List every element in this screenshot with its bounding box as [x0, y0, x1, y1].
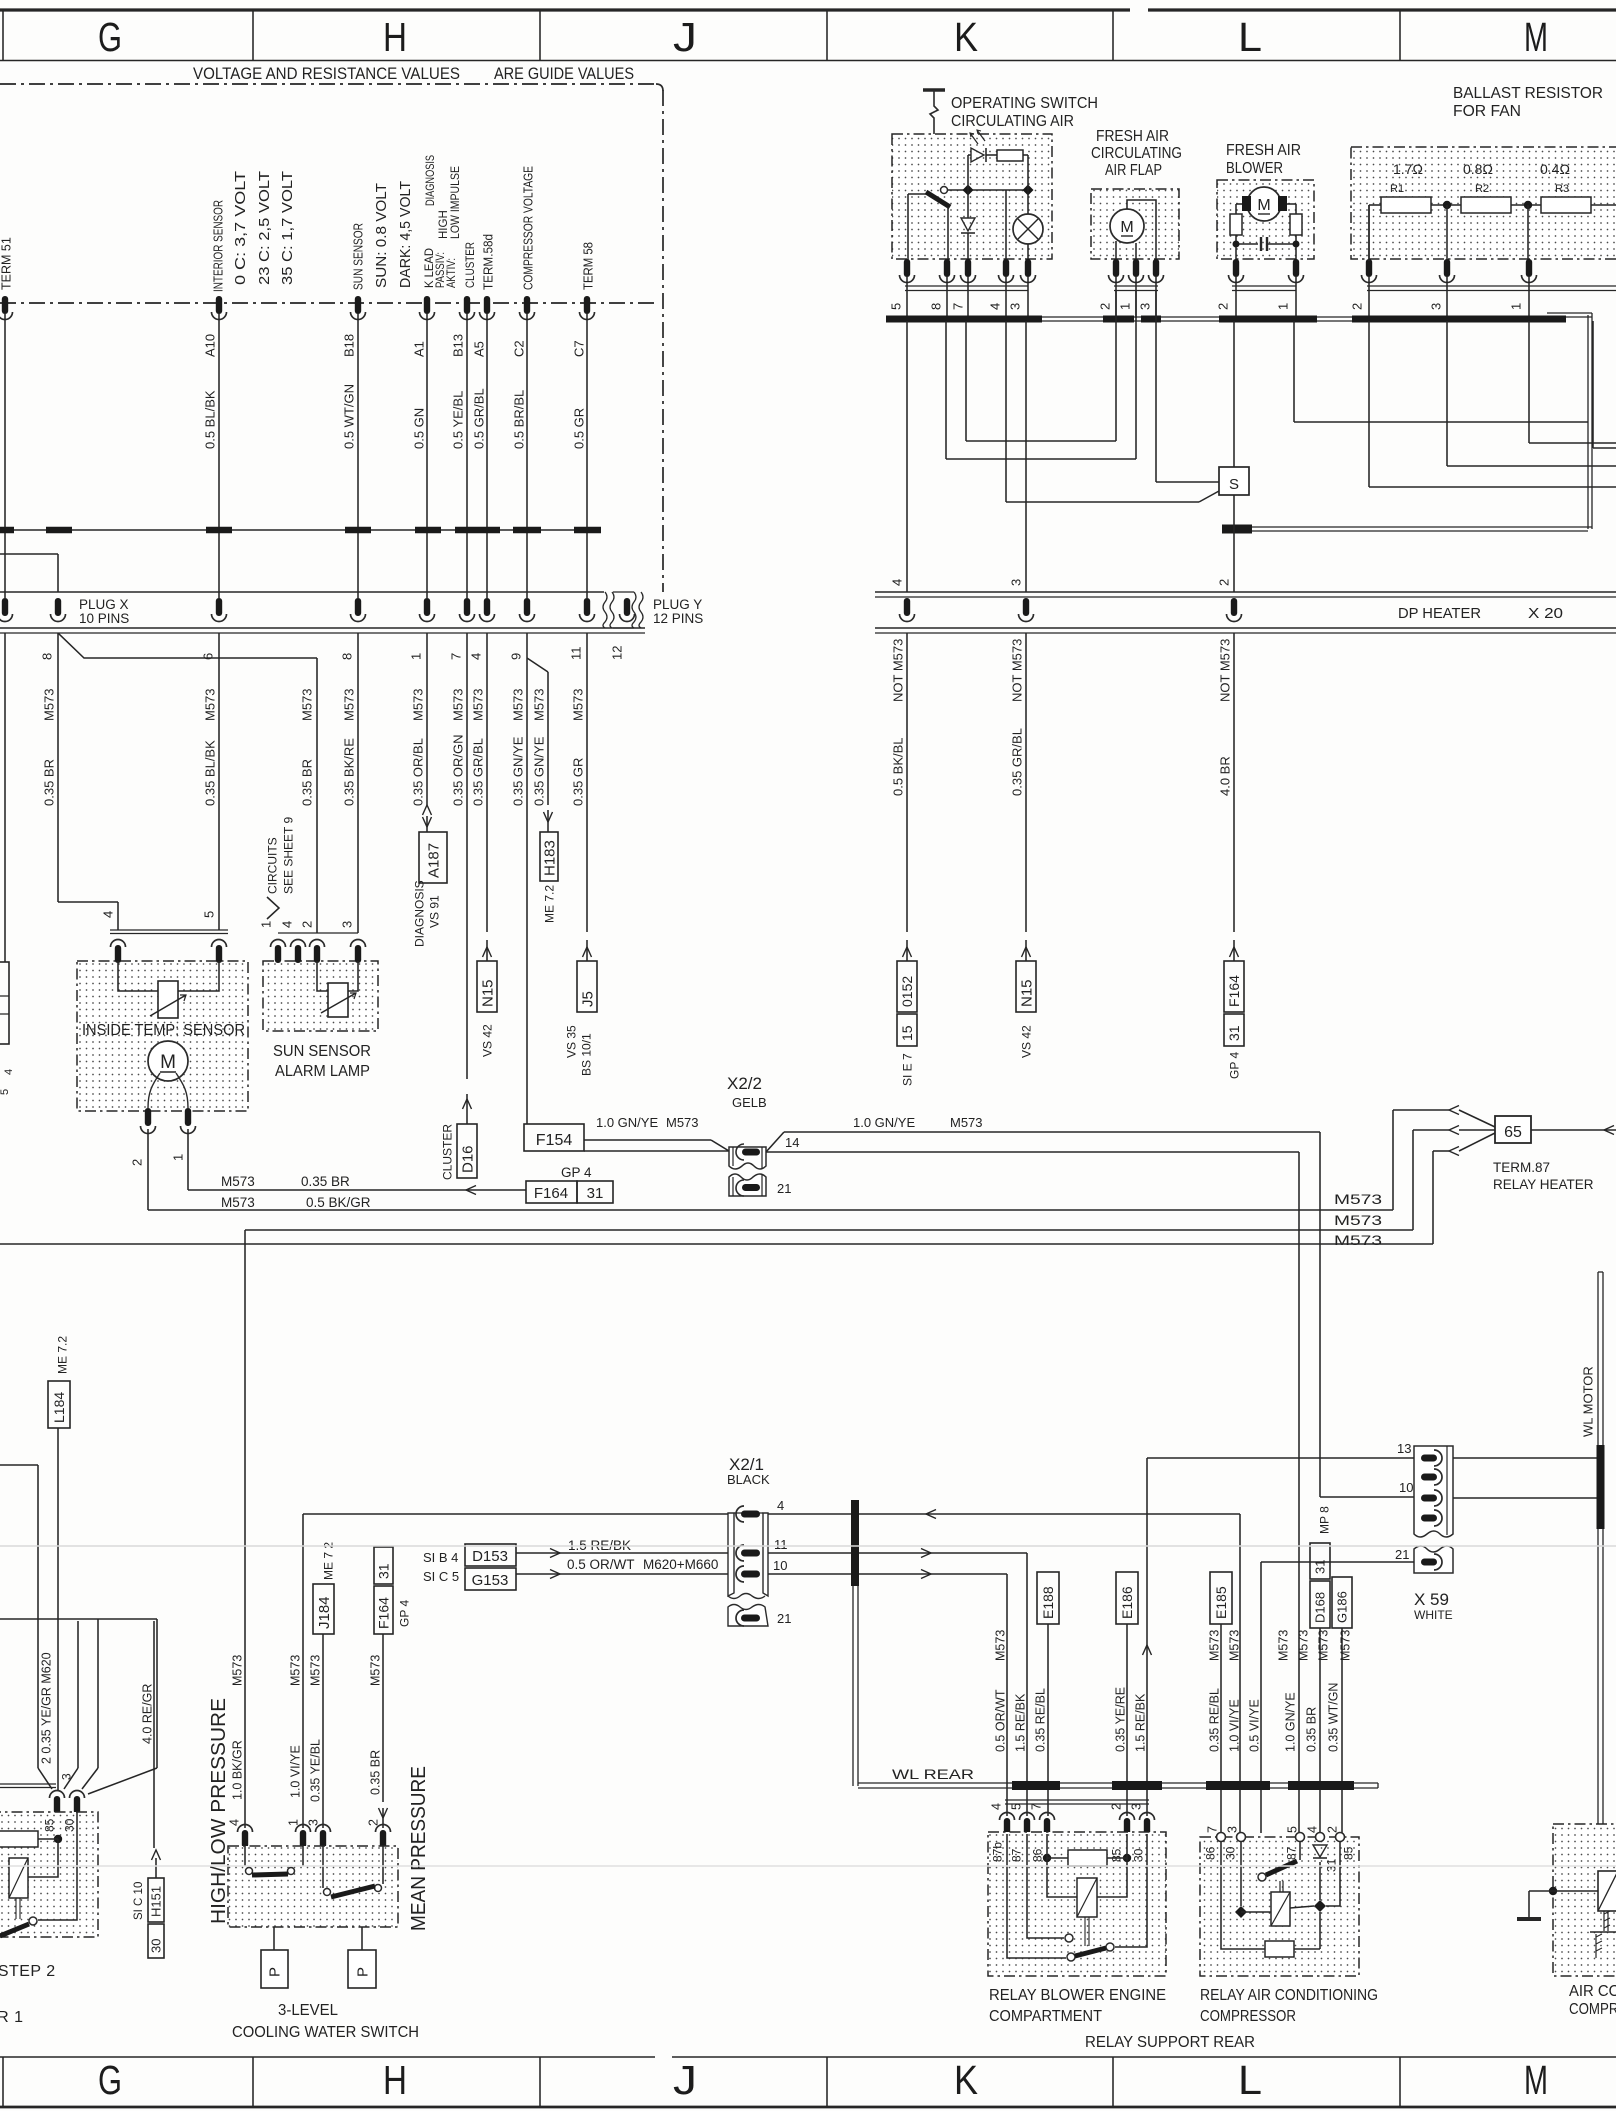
svg-text:M: M — [1524, 14, 1548, 60]
svg-text:0.35 BL/BK: 0.35 BL/BK — [203, 740, 218, 806]
svg-text:3: 3 — [1009, 579, 1024, 586]
svg-text:1: 1 — [1276, 303, 1291, 310]
svg-text:DIAGNOSIS: DIAGNOSIS — [412, 880, 426, 947]
svg-text:0.35 BK/RE: 0.35 BK/RE — [342, 738, 357, 806]
svg-text:CIRCULATING AIR: CIRCULATING AIR — [951, 113, 1074, 130]
svg-text:0.35 BR: 0.35 BR — [301, 1174, 350, 1189]
svg-text:0152: 0152 — [899, 976, 915, 1007]
svg-text:D153: D153 — [472, 1548, 508, 1565]
svg-text:M573: M573 — [1334, 1212, 1382, 1228]
svg-text:0.35 GN/YE: 0.35 GN/YE — [532, 736, 547, 806]
svg-text:GP 4: GP 4 — [561, 1165, 592, 1180]
svg-text:HIGH/LOW PRESSURE: HIGH/LOW PRESSURE — [208, 1698, 230, 1924]
svg-text:ME 7.2: ME 7.2 — [542, 885, 556, 923]
svg-text:HIGH: HIGH — [438, 210, 450, 239]
svg-text:4: 4 — [890, 579, 905, 586]
svg-text:12: 12 — [610, 646, 625, 660]
svg-text:H: H — [383, 14, 407, 60]
svg-text:0.35 OR/GN: 0.35 OR/GN — [451, 734, 466, 806]
svg-text:0.35 YE/BL: 0.35 YE/BL — [309, 1739, 323, 1802]
svg-text:4: 4 — [101, 911, 116, 918]
svg-text:BLOWER: BLOWER — [1226, 160, 1283, 177]
svg-text:A187: A187 — [425, 843, 442, 878]
svg-text:M573: M573 — [369, 1655, 383, 1686]
svg-text:1: 1 — [171, 1154, 186, 1161]
svg-text:MP 8: MP 8 — [1317, 1506, 1331, 1534]
svg-text:7: 7 — [951, 303, 966, 310]
svg-text:M: M — [1120, 219, 1133, 236]
svg-text:0.5 BL/BK: 0.5 BL/BK — [203, 390, 218, 449]
svg-text:21: 21 — [777, 1181, 791, 1196]
svg-text:PLUG X: PLUG X — [79, 597, 129, 612]
svg-text:J5: J5 — [579, 991, 596, 1007]
svg-text:INTERIOR SENSOR: INTERIOR SENSOR — [211, 200, 226, 292]
svg-text:M620+M660: M620+M660 — [643, 1557, 718, 1572]
svg-text:1.0 GN/YE: 1.0 GN/YE — [1284, 1692, 1298, 1752]
svg-text:L: L — [1238, 14, 1262, 60]
svg-text:31: 31 — [376, 1563, 392, 1579]
svg-text:8: 8 — [340, 653, 355, 660]
svg-text:A5: A5 — [472, 341, 487, 357]
svg-text:3: 3 — [59, 1773, 73, 1780]
svg-text:BLACK: BLACK — [727, 1472, 770, 1487]
svg-text:COMPRESS: COMPRESS — [1569, 2001, 1616, 2018]
svg-text:SI C 5: SI C 5 — [423, 1569, 459, 1584]
svg-text:WHITE: WHITE — [1414, 1608, 1453, 1622]
svg-text:CLUSTER: CLUSTER — [440, 1124, 454, 1180]
svg-text:1: 1 — [1118, 303, 1133, 310]
svg-text:TERM 51: TERM 51 — [0, 237, 14, 290]
svg-text:SI B 4: SI B 4 — [423, 1550, 458, 1565]
svg-text:87: 87 — [1009, 1848, 1023, 1862]
svg-text:14: 14 — [785, 1135, 799, 1150]
svg-text:M573: M573 — [666, 1115, 699, 1130]
svg-text:2: 2 — [367, 1819, 381, 1826]
svg-text:J: J — [673, 2057, 697, 2103]
svg-text:VOLTAGE AND RESISTANCE VALUES: VOLTAGE AND RESISTANCE VALUES — [193, 64, 460, 83]
svg-text:H: H — [383, 2057, 407, 2103]
svg-text:FRESH AIR: FRESH AIR — [1096, 128, 1169, 145]
svg-text:J: J — [673, 14, 697, 60]
svg-text:H183: H183 — [541, 840, 558, 876]
svg-text:RELAY AIR CONDITIONING: RELAY AIR CONDITIONING — [1200, 1987, 1378, 2004]
svg-text:D168: D168 — [1313, 1592, 1328, 1623]
svg-text:1.0 GN/YE: 1.0 GN/YE — [596, 1115, 658, 1130]
svg-text:M573: M573 — [1334, 1232, 1382, 1248]
svg-text:1.0 VI/YE: 1.0 VI/YE — [1228, 1699, 1242, 1752]
svg-text:VS 42: VS 42 — [1019, 1025, 1033, 1058]
svg-text:E188: E188 — [1040, 1586, 1056, 1619]
svg-text:C7: C7 — [572, 340, 587, 357]
svg-text:M573: M573 — [300, 688, 315, 721]
svg-text:3-LEVEL: 3-LEVEL — [278, 2002, 338, 2019]
svg-text:SEE SHEET 9: SEE SHEET 9 — [281, 817, 295, 894]
svg-text:8: 8 — [929, 303, 944, 310]
svg-text:0.35 WT/GN: 0.35 WT/GN — [1327, 1683, 1341, 1752]
svg-text:1.7Ω: 1.7Ω — [1393, 161, 1423, 177]
svg-text:0.35 GN/YE: 0.35 GN/YE — [511, 736, 526, 806]
svg-text:AY STEP 2: AY STEP 2 — [0, 1963, 56, 1980]
svg-text:GELB: GELB — [732, 1095, 767, 1110]
svg-text:7: 7 — [449, 653, 464, 660]
svg-text:GP 4: GP 4 — [397, 1600, 411, 1627]
svg-text:K: K — [954, 2057, 978, 2103]
svg-text:M573: M573 — [511, 688, 526, 721]
svg-text:6: 6 — [201, 653, 216, 660]
svg-text:4: 4 — [280, 921, 295, 928]
svg-text:87b: 87b — [990, 1842, 1004, 1862]
svg-text:D16: D16 — [459, 1145, 476, 1173]
svg-text:30: 30 — [1223, 1846, 1237, 1860]
svg-text:LOW IMPULSE: LOW IMPULSE — [450, 166, 462, 239]
svg-text:0.5 BR/BL: 0.5 BR/BL — [512, 390, 527, 449]
svg-text:M573: M573 — [411, 688, 426, 721]
svg-text:F164: F164 — [534, 1185, 568, 1202]
svg-text:0.35 BR: 0.35 BR — [300, 759, 315, 806]
svg-text:3: 3 — [1429, 303, 1444, 310]
svg-text:2: 2 — [1350, 303, 1365, 310]
svg-text:M573: M573 — [203, 688, 218, 721]
svg-text:5: 5 — [889, 303, 904, 310]
svg-text:86: 86 — [1030, 1848, 1044, 1862]
svg-text:1: 1 — [1509, 303, 1524, 310]
svg-text:5: 5 — [1286, 1826, 1300, 1833]
svg-text:0.5 BK/GR: 0.5 BK/GR — [306, 1195, 371, 1210]
svg-text:ME 7.2: ME 7.2 — [55, 1336, 69, 1374]
svg-text:AIR FLAP: AIR FLAP — [1105, 162, 1162, 179]
svg-text:DP HEATER: DP HEATER — [1398, 605, 1481, 622]
svg-text:SUN SENSOR: SUN SENSOR — [273, 1043, 371, 1060]
svg-text:2: 2 — [1326, 1826, 1340, 1833]
svg-text:G: G — [98, 2057, 122, 2103]
svg-text:7: 7 — [1206, 1826, 1220, 1833]
svg-text:NOT M573: NOT M573 — [1010, 639, 1025, 702]
svg-text:13: 13 — [1397, 1441, 1411, 1456]
svg-text:1: 1 — [409, 653, 424, 660]
svg-text:M573: M573 — [571, 688, 586, 721]
svg-text:R1: R1 — [1390, 183, 1404, 195]
svg-text:B13: B13 — [451, 334, 466, 357]
svg-text:P: P — [266, 1967, 283, 1977]
svg-text:10: 10 — [1399, 1480, 1413, 1495]
svg-text:M573: M573 — [342, 688, 357, 721]
svg-text:M573: M573 — [309, 1655, 323, 1686]
svg-text:K: K — [954, 14, 978, 60]
svg-text:87: 87 — [1284, 1846, 1298, 1860]
svg-text:RELAY HEATER: RELAY HEATER — [1493, 1177, 1594, 1192]
svg-text:L: L — [1238, 2057, 1262, 2103]
svg-text:2 0.35 YE/GR M620: 2 0.35 YE/GR M620 — [40, 1652, 54, 1764]
svg-text:5: 5 — [0, 1089, 11, 1095]
svg-text:G186: G186 — [1335, 1591, 1350, 1623]
svg-text:OPERATING SWITCH: OPERATING SWITCH — [951, 95, 1098, 112]
svg-text:COMPRESSOR: COMPRESSOR — [1200, 2008, 1296, 2025]
svg-text:0.5 GR/BL: 0.5 GR/BL — [472, 388, 487, 449]
svg-text:F154: F154 — [536, 1132, 573, 1149]
svg-text:CIRCULATING: CIRCULATING — [1091, 145, 1182, 162]
svg-text:PLUG Y: PLUG Y — [653, 597, 702, 612]
svg-text:4.0 RE/GR: 4.0 RE/GR — [141, 1684, 155, 1744]
svg-text:MEAN PRESSURE: MEAN PRESSURE — [408, 1766, 430, 1931]
svg-text:GP 4: GP 4 — [1227, 1052, 1241, 1079]
svg-text:0.5 YE/BL: 0.5 YE/BL — [451, 391, 466, 449]
svg-text:AKTIV:: AKTIV: — [446, 258, 458, 288]
svg-text:0.35 YE/RE: 0.35 YE/RE — [1114, 1687, 1128, 1752]
svg-text:3: 3 — [307, 1819, 321, 1826]
svg-text:4: 4 — [990, 1803, 1004, 1810]
svg-text:4: 4 — [988, 303, 1003, 310]
svg-text:3: 3 — [1008, 303, 1023, 310]
svg-text:COMPARTMENT: COMPARTMENT — [989, 2008, 1102, 2025]
svg-text:2: 2 — [300, 921, 315, 928]
svg-text:1.5 RE/BK: 1.5 RE/BK — [1134, 1693, 1148, 1752]
svg-text:3: 3 — [1138, 303, 1153, 310]
svg-text:WL REAR: WL REAR — [892, 1766, 974, 1782]
svg-text:8: 8 — [40, 653, 55, 660]
svg-text:TERM.58d: TERM.58d — [482, 234, 496, 290]
svg-text:F164: F164 — [1226, 975, 1242, 1007]
svg-text:AIR CON: AIR CON — [1569, 1983, 1616, 2000]
svg-text:M573: M573 — [1208, 1630, 1222, 1661]
svg-text:BS 10/1: BS 10/1 — [579, 1033, 593, 1076]
svg-text:VS 91: VS 91 — [427, 895, 441, 928]
svg-text:4: 4 — [3, 1069, 15, 1075]
svg-text:A1: A1 — [412, 341, 427, 357]
svg-text:B18: B18 — [342, 334, 357, 357]
svg-text:M573: M573 — [1339, 1630, 1353, 1661]
svg-text:0.5 WT/GN: 0.5 WT/GN — [342, 384, 357, 449]
svg-text:85: 85 — [1109, 1848, 1123, 1862]
svg-text:15: 15 — [899, 1025, 915, 1041]
svg-text:G153: G153 — [472, 1572, 509, 1589]
svg-text:L184: L184 — [51, 1392, 67, 1423]
svg-text:1.0 BK/GR: 1.0 BK/GR — [231, 1740, 245, 1800]
svg-text:4: 4 — [469, 653, 484, 660]
svg-text:M573: M573 — [1334, 1191, 1382, 1207]
svg-text:RELAY BLOWER ENGINE: RELAY BLOWER ENGINE — [989, 1987, 1166, 2004]
svg-text:1: 1 — [287, 1819, 301, 1826]
svg-text:21: 21 — [777, 1611, 791, 1626]
svg-text:NOT M573: NOT M573 — [891, 639, 906, 702]
svg-text:2: 2 — [1217, 579, 1232, 586]
svg-text:P: P — [354, 1967, 371, 1977]
svg-text:ALARM LAMP: ALARM LAMP — [275, 1063, 370, 1080]
svg-text:VS 42: VS 42 — [480, 1024, 494, 1057]
svg-text:85: 85 — [42, 1818, 56, 1832]
svg-text:0.4Ω: 0.4Ω — [1540, 161, 1570, 177]
svg-text:CLUSTER: CLUSTER — [465, 242, 477, 288]
svg-text:M573: M573 — [994, 1630, 1008, 1661]
svg-text:E186: E186 — [1119, 1586, 1135, 1619]
svg-text:RELAY SUPPORT REAR: RELAY SUPPORT REAR — [1085, 2034, 1255, 2051]
svg-text:31: 31 — [1313, 1560, 1328, 1574]
svg-text:0.35 BR: 0.35 BR — [42, 759, 57, 806]
svg-text:VS 35: VS 35 — [564, 1025, 578, 1058]
svg-text:H151: H151 — [149, 1886, 164, 1917]
svg-text:9: 9 — [509, 653, 524, 660]
svg-text:M573: M573 — [1228, 1630, 1242, 1661]
svg-text:CIRCUITS: CIRCUITS — [265, 837, 279, 894]
svg-text:INSIDE TEMP: SENSOR: INSIDE TEMP: SENSOR — [82, 1022, 245, 1039]
svg-text:M573: M573 — [471, 688, 486, 721]
svg-text:0.5 VI/YE: 0.5 VI/YE — [1248, 1699, 1262, 1752]
svg-text:86: 86 — [1203, 1846, 1217, 1860]
svg-text:1.0 VI/YE: 1.0 VI/YE — [289, 1745, 303, 1798]
svg-text:0.35 GR/BL: 0.35 GR/BL — [471, 738, 486, 806]
svg-text:TERM 58: TERM 58 — [582, 242, 596, 290]
svg-text:M573: M573 — [1297, 1630, 1311, 1661]
svg-text:11: 11 — [569, 647, 584, 661]
svg-text:J184: J184 — [316, 1596, 333, 1629]
svg-text:1: 1 — [259, 921, 274, 928]
svg-text:N15: N15 — [1018, 979, 1035, 1007]
svg-text:11: 11 — [774, 1537, 788, 1552]
svg-text:0.35 RE/BL: 0.35 RE/BL — [1208, 1688, 1222, 1752]
svg-text:SI E 7: SI E 7 — [900, 1053, 914, 1086]
svg-text:M573: M573 — [42, 688, 57, 721]
svg-text:0.35 GR: 0.35 GR — [571, 758, 586, 806]
svg-text:0.8Ω: 0.8Ω — [1463, 161, 1493, 177]
svg-text:SUN: 0.8 VOLT: SUN: 0.8 VOLT — [374, 183, 390, 288]
svg-text:X2/2: X2/2 — [727, 1074, 762, 1093]
svg-text:0.35 RE/BL: 0.35 RE/BL — [1034, 1688, 1048, 1752]
svg-text:0.35 BR: 0.35 BR — [1305, 1707, 1319, 1752]
svg-text:M: M — [1257, 197, 1270, 214]
svg-text:X 20: X 20 — [1528, 605, 1563, 622]
svg-text:M573: M573 — [1317, 1630, 1331, 1661]
svg-text:0.5 BK/BL: 0.5 BK/BL — [891, 737, 906, 796]
svg-text:30: 30 — [149, 1939, 164, 1953]
svg-text:R3: R3 — [1555, 183, 1569, 195]
svg-text:F164: F164 — [376, 1597, 392, 1629]
svg-text:M573: M573 — [950, 1115, 983, 1130]
svg-text:SUN SENSOR: SUN SENSOR — [351, 223, 366, 290]
svg-text:30: 30 — [62, 1818, 76, 1832]
svg-text:G: G — [98, 14, 122, 60]
svg-text:1.0 GN/YE: 1.0 GN/YE — [853, 1115, 915, 1130]
svg-text:0.35 GR/BL: 0.35 GR/BL — [1010, 728, 1025, 796]
svg-text:M573: M573 — [289, 1655, 303, 1686]
svg-text:M573: M573 — [451, 688, 466, 721]
svg-text:A10: A10 — [203, 334, 218, 357]
svg-text:0 C: 3,7 VOLT: 0 C: 3,7 VOLT — [233, 171, 249, 285]
svg-text:ME 7 2: ME 7 2 — [321, 1542, 335, 1580]
svg-text:N15: N15 — [479, 979, 496, 1007]
svg-text:0.5 GN: 0.5 GN — [412, 408, 427, 449]
svg-text:M573: M573 — [221, 1174, 255, 1189]
svg-text:2: 2 — [1216, 303, 1231, 310]
svg-text:WL MOTOR: WL MOTOR — [1581, 1366, 1596, 1437]
svg-text:21: 21 — [1395, 1547, 1409, 1562]
svg-text:E185: E185 — [1213, 1586, 1229, 1619]
svg-text:3: 3 — [340, 921, 355, 928]
svg-text:0.5 GR: 0.5 GR — [572, 408, 587, 449]
svg-text:ARE GUIDE VALUES: ARE GUIDE VALUES — [494, 64, 634, 83]
svg-text:65: 65 — [1504, 1124, 1522, 1141]
svg-text:DARK: 4,5 VOLT: DARK: 4,5 VOLT — [398, 181, 414, 288]
svg-text:0.35 BR: 0.35 BR — [369, 1750, 383, 1795]
svg-text:DIAGNOSIS: DIAGNOSIS — [425, 155, 437, 206]
svg-text:12 PINS: 12 PINS — [653, 611, 703, 626]
svg-text:10: 10 — [773, 1558, 787, 1573]
svg-text:FRESH AIR: FRESH AIR — [1226, 142, 1301, 159]
svg-text:31: 31 — [1324, 1858, 1338, 1872]
svg-text:FOR FAN: FOR FAN — [1453, 103, 1521, 120]
svg-text:5: 5 — [202, 911, 217, 918]
svg-text:C2: C2 — [512, 340, 527, 357]
svg-text:NOT M573: NOT M573 — [1218, 639, 1233, 702]
svg-text:2: 2 — [1098, 303, 1113, 310]
svg-text:M: M — [160, 1052, 176, 1073]
svg-text:31: 31 — [587, 1185, 604, 1202]
svg-text:ER 1: ER 1 — [0, 2009, 24, 2026]
svg-text:4: 4 — [1306, 1826, 1320, 1833]
svg-text:30: 30 — [1131, 1848, 1145, 1862]
svg-text:0.5 OR/WT: 0.5 OR/WT — [567, 1557, 635, 1572]
svg-text:M573: M573 — [1277, 1630, 1291, 1661]
svg-text:23 C: 2,5 VOLT: 23 C: 2,5 VOLT — [257, 171, 273, 285]
svg-text:R2: R2 — [1475, 183, 1489, 195]
svg-text:COOLING WATER SWITCH: COOLING WATER SWITCH — [232, 2024, 419, 2041]
svg-text:BALLAST RESISTOR: BALLAST RESISTOR — [1453, 85, 1603, 102]
svg-text:4: 4 — [777, 1498, 784, 1513]
svg-text:0.5 OR/WT: 0.5 OR/WT — [994, 1689, 1008, 1752]
svg-text:M: M — [1524, 2057, 1548, 2103]
svg-text:31: 31 — [1226, 1025, 1242, 1041]
svg-text:COMPRESSOR VOLTAGE: COMPRESSOR VOLTAGE — [522, 166, 536, 290]
svg-text:M573: M573 — [532, 688, 547, 721]
svg-text:2: 2 — [130, 1159, 145, 1166]
svg-text:85: 85 — [1341, 1846, 1355, 1860]
svg-text:M573: M573 — [221, 1195, 255, 1210]
svg-text:SI C 10: SI C 10 — [133, 1882, 145, 1920]
svg-text:M573: M573 — [231, 1655, 245, 1686]
svg-text:3: 3 — [1226, 1826, 1240, 1833]
svg-text:4.0 BR: 4.0 BR — [1218, 756, 1233, 796]
svg-text:S: S — [1229, 476, 1239, 493]
svg-text:1.5 RE/BK: 1.5 RE/BK — [1014, 1693, 1028, 1752]
svg-text:TERM.87: TERM.87 — [1493, 1160, 1550, 1175]
svg-text:35 C: 1,7 VOLT: 35 C: 1,7 VOLT — [280, 171, 296, 285]
svg-text:10 PINS: 10 PINS — [79, 611, 129, 626]
svg-text:X 59: X 59 — [1414, 1590, 1449, 1609]
svg-text:0.35 OR/BL: 0.35 OR/BL — [411, 738, 426, 806]
